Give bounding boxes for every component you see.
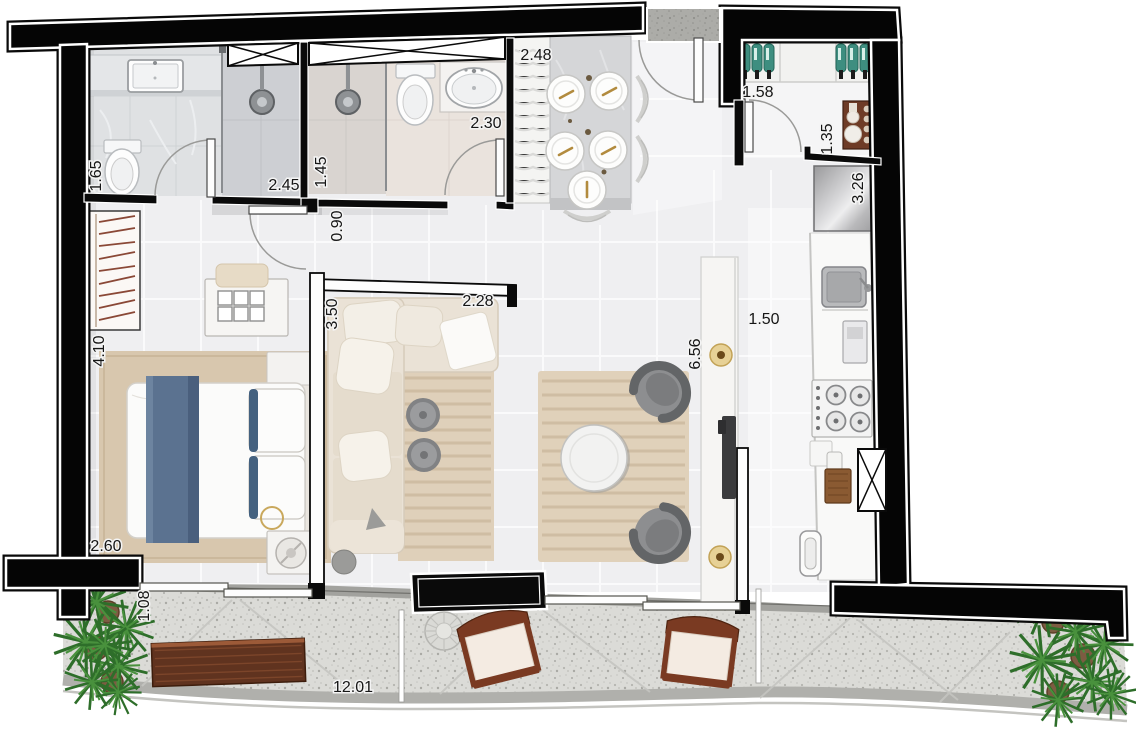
svg-text:12.01: 12.01	[333, 679, 373, 696]
svg-text:1.08: 1.08	[136, 590, 153, 621]
svg-text:1.45: 1.45	[313, 156, 330, 187]
svg-text:1.58: 1.58	[742, 84, 773, 101]
svg-text:2.45: 2.45	[268, 177, 299, 194]
svg-text:3.26: 3.26	[850, 172, 867, 203]
svg-text:2.28: 2.28	[462, 293, 493, 310]
svg-text:3.50: 3.50	[324, 298, 341, 329]
svg-text:1.65: 1.65	[88, 160, 105, 191]
svg-text:1.50: 1.50	[748, 311, 779, 328]
svg-text:4.10: 4.10	[91, 335, 108, 366]
svg-text:6.56: 6.56	[687, 338, 704, 369]
svg-text:0.90: 0.90	[329, 210, 346, 241]
svg-text:1.35: 1.35	[819, 123, 836, 154]
svg-text:2.30: 2.30	[470, 115, 501, 132]
svg-text:2.60: 2.60	[90, 538, 121, 555]
svg-text:2.48: 2.48	[520, 47, 551, 64]
